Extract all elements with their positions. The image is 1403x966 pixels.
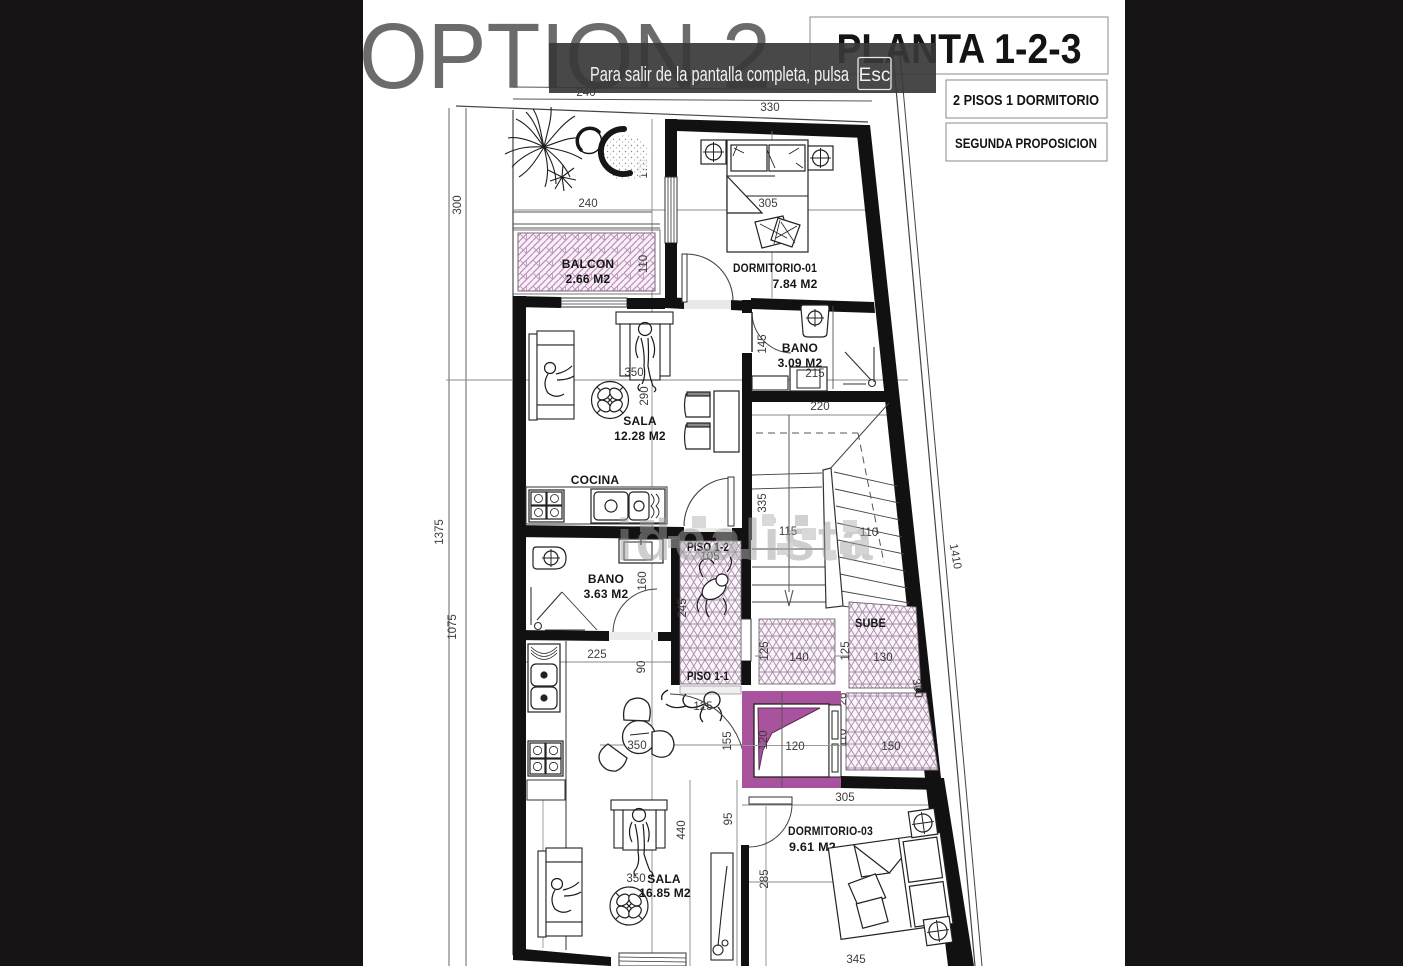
svg-text:345: 345: [846, 954, 865, 966]
svg-text:285: 285: [759, 869, 771, 888]
svg-text:440: 440: [676, 820, 688, 839]
svg-text:Esc: Esc: [859, 65, 891, 86]
svg-text:16.85 M2: 16.85 M2: [639, 886, 691, 900]
svg-text:125: 125: [693, 701, 712, 713]
svg-text:160: 160: [637, 571, 649, 590]
svg-text:SEGUNDA PROPOSICION: SEGUNDA PROPOSICION: [955, 135, 1097, 151]
svg-text:idealista: idealista: [616, 508, 875, 573]
svg-text:225: 225: [587, 649, 606, 661]
svg-text:305: 305: [758, 198, 777, 210]
svg-text:350: 350: [624, 367, 643, 379]
svg-text:PISO 1-1: PISO 1-1: [687, 669, 729, 683]
svg-text:245: 245: [677, 598, 689, 617]
svg-text:SALA: SALA: [623, 414, 657, 428]
svg-text:SALA: SALA: [647, 872, 681, 886]
svg-text:110: 110: [638, 255, 650, 273]
svg-text:240: 240: [578, 198, 597, 210]
svg-text:120: 120: [758, 730, 770, 749]
svg-text:3.63 M2: 3.63 M2: [584, 587, 629, 601]
svg-text:125: 125: [840, 641, 852, 660]
svg-text:145: 145: [757, 334, 769, 353]
svg-text:1075: 1075: [447, 614, 459, 640]
svg-text:1375: 1375: [434, 519, 446, 545]
svg-text:330: 330: [760, 102, 779, 114]
svg-text:7.84 M2: 7.84 M2: [773, 277, 818, 291]
svg-text:350: 350: [627, 740, 646, 752]
svg-text:140: 140: [789, 652, 808, 664]
svg-text:12.28 M2: 12.28 M2: [614, 429, 666, 443]
svg-text:95: 95: [723, 813, 735, 826]
svg-text:Para salir de la pantalla comp: Para salir de la pantalla completa, puls…: [590, 64, 850, 86]
svg-text:130: 130: [873, 652, 892, 664]
svg-text:120: 120: [785, 741, 804, 753]
svg-text:BANO: BANO: [588, 572, 624, 586]
svg-text:220: 220: [810, 401, 829, 413]
svg-text:90: 90: [636, 661, 648, 674]
svg-text:290: 290: [639, 386, 651, 405]
svg-text:DORMITORIO-03: DORMITORIO-03: [788, 824, 873, 838]
svg-text:BANO: BANO: [782, 341, 818, 355]
svg-text:DORMITORIO-01: DORMITORIO-01: [733, 261, 817, 275]
svg-text:215: 215: [805, 368, 824, 380]
svg-text:125: 125: [759, 641, 771, 660]
svg-text:BALCON: BALCON: [562, 257, 615, 271]
svg-text:305: 305: [835, 792, 854, 804]
svg-text:300: 300: [452, 195, 464, 214]
svg-text:150: 150: [881, 741, 900, 753]
svg-text:COCINA: COCINA: [571, 473, 620, 487]
svg-text:2.66 M2: 2.66 M2: [566, 272, 611, 286]
svg-text:350: 350: [626, 873, 645, 885]
svg-text:2 PISOS 1 DORMITORIO: 2 PISOS 1 DORMITORIO: [953, 92, 1099, 109]
svg-text:155: 155: [722, 731, 734, 750]
svg-text:SUBE: SUBE: [855, 616, 886, 630]
